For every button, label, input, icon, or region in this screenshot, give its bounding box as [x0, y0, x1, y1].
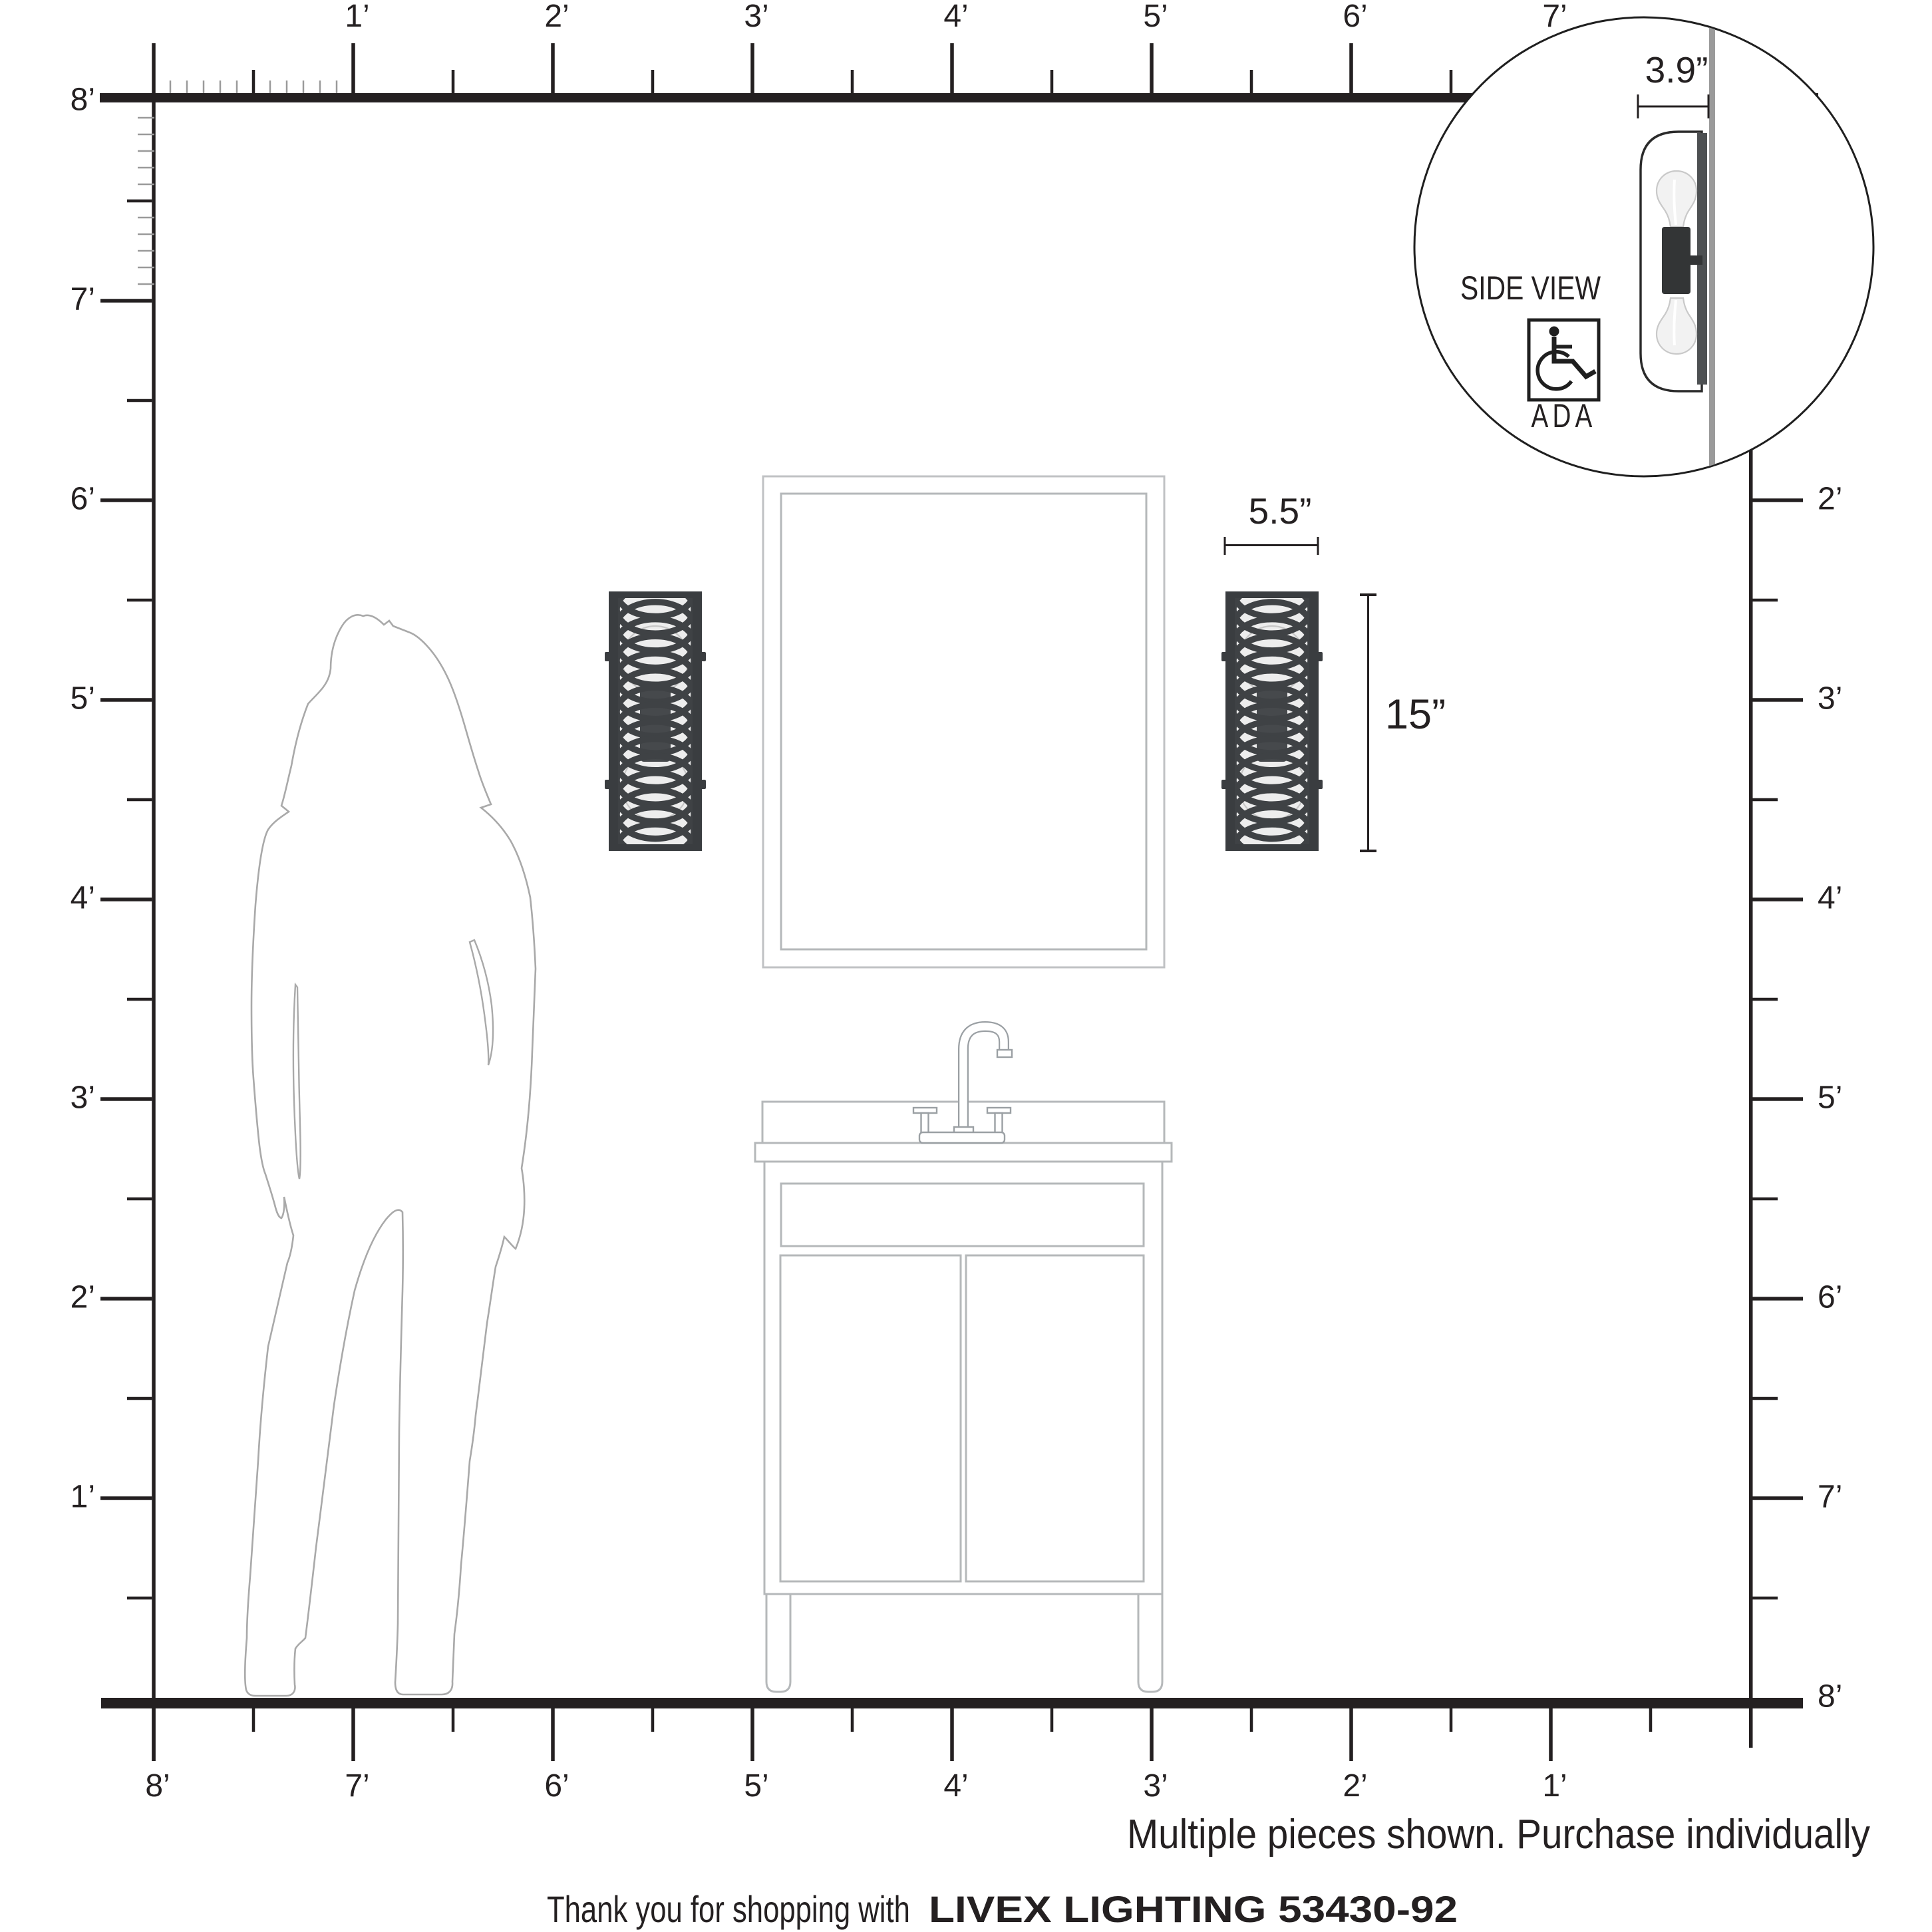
svg-text:2’: 2’	[1343, 1768, 1367, 1804]
svg-text:7’: 7’	[345, 1768, 369, 1804]
svg-text:1’: 1’	[1542, 1768, 1567, 1804]
svg-text:3’: 3’	[1818, 681, 1842, 717]
svg-text:7’: 7’	[1818, 1480, 1842, 1515]
svg-text:4’: 4’	[943, 0, 968, 34]
svg-text:6’: 6’	[71, 482, 95, 517]
svg-text:8’: 8’	[71, 82, 95, 118]
svg-text:SIDE VIEW: SIDE VIEW	[1460, 269, 1601, 307]
svg-text:6’: 6’	[544, 1768, 569, 1804]
svg-text:5’: 5’	[1818, 1080, 1842, 1116]
svg-text:Multiple pieces shown. Purchas: Multiple pieces shown. Purchase individu…	[1127, 1812, 1870, 1857]
svg-text:6’: 6’	[1818, 1280, 1842, 1315]
svg-text:1’: 1’	[345, 0, 369, 34]
svg-text:Thank you for shopping with LI: Thank you for shopping with LIVEX LIGHTI…	[547, 1888, 1458, 1930]
svg-text:7’: 7’	[71, 282, 95, 317]
svg-text:6’: 6’	[1343, 0, 1367, 34]
svg-text:2’: 2’	[544, 0, 569, 34]
svg-text:1’: 1’	[71, 1480, 95, 1515]
svg-text:4’: 4’	[943, 1768, 968, 1804]
svg-text:3.9”: 3.9”	[1645, 49, 1708, 90]
svg-text:15”: 15”	[1385, 691, 1446, 738]
svg-text:5’: 5’	[744, 1768, 768, 1804]
svg-text:2’: 2’	[1818, 482, 1842, 517]
svg-text:5’: 5’	[71, 681, 95, 717]
svg-text:8’: 8’	[1818, 1679, 1842, 1714]
svg-text:4’: 4’	[71, 881, 95, 916]
svg-text:7’: 7’	[1542, 0, 1567, 34]
svg-text:3’: 3’	[71, 1080, 95, 1116]
svg-text:4’: 4’	[1818, 881, 1842, 916]
svg-text:8’: 8’	[145, 1768, 170, 1804]
svg-text:ADA: ADA	[1531, 397, 1597, 434]
svg-text:2’: 2’	[71, 1280, 95, 1315]
svg-text:3’: 3’	[744, 0, 768, 34]
svg-text:3’: 3’	[1143, 1768, 1168, 1804]
svg-text:5.5”: 5.5”	[1249, 490, 1312, 532]
svg-text:5’: 5’	[1143, 0, 1168, 34]
